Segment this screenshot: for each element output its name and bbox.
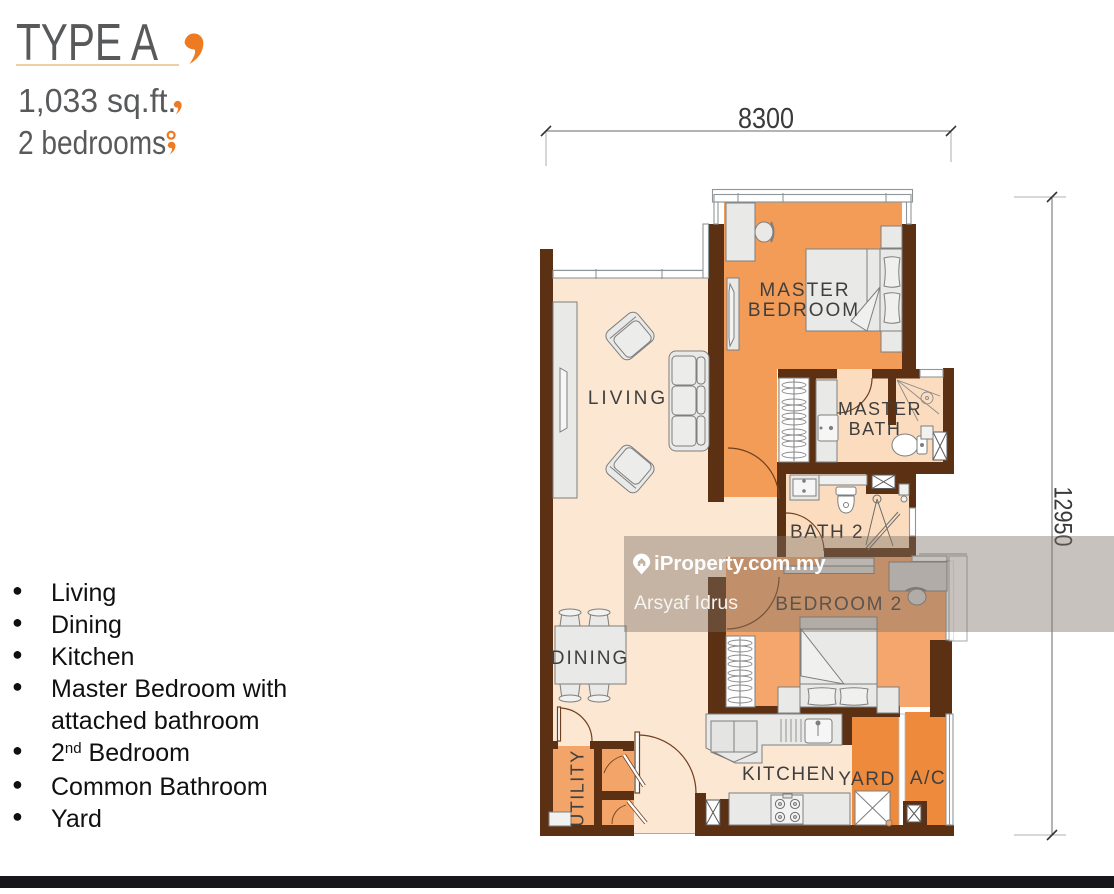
svg-text:MASTER: MASTER [759,280,850,301]
svg-text:DINING: DINING [551,648,630,669]
svg-text:BATH: BATH [849,419,902,439]
svg-text:Arsyaf Idrus: Arsyaf Idrus [634,592,738,614]
svg-text:YARD: YARD [838,769,895,790]
svg-text:MASTER: MASTER [838,399,922,419]
svg-text:LIVING: LIVING [588,388,668,409]
svg-text:A/C: A/C [910,768,946,789]
svg-text:iProperty.com.my: iProperty.com.my [654,552,826,575]
svg-text:8300: 8300 [738,103,794,135]
svg-text:UTILITY: UTILITY [568,749,588,827]
svg-text:KITCHEN: KITCHEN [742,764,836,785]
svg-text:BEDROOM: BEDROOM [748,300,860,321]
